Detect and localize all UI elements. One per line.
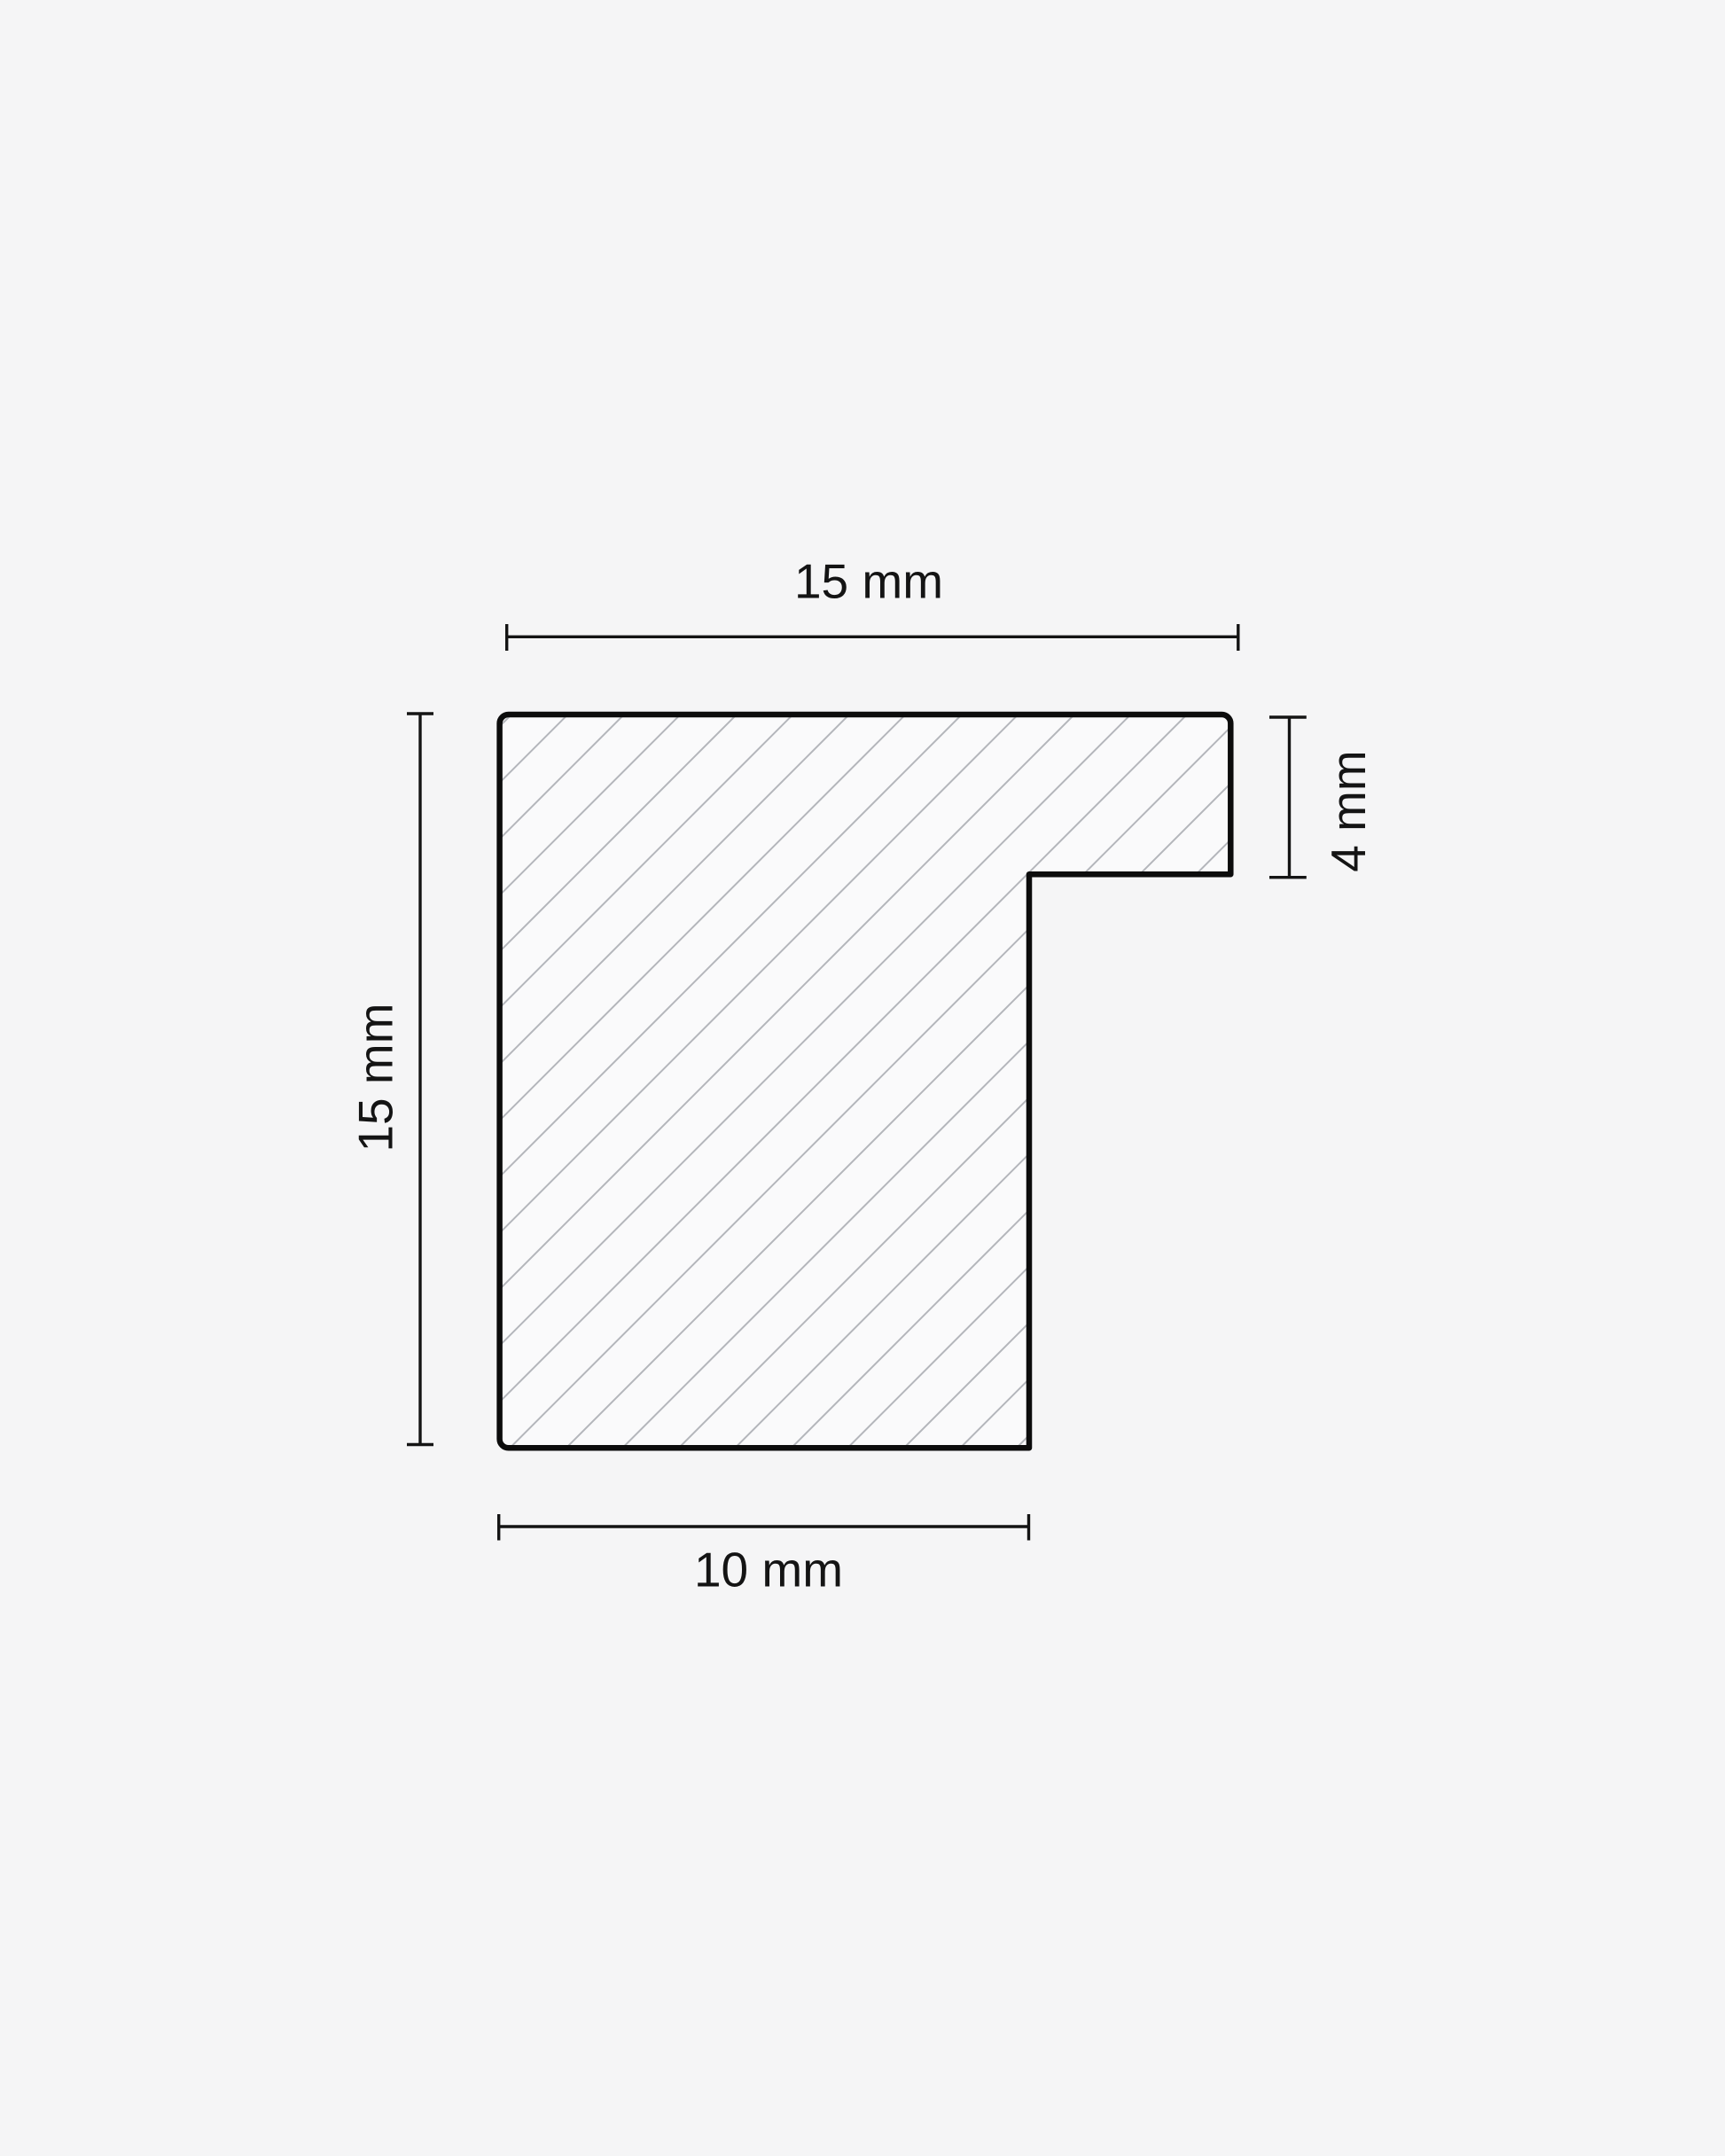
svg-text:15 mm: 15 mm (794, 554, 943, 609)
svg-text:15 mm: 15 mm (348, 1003, 403, 1152)
svg-text:10 mm: 10 mm (694, 1543, 843, 1597)
svg-text:4 mm: 4 mm (1321, 750, 1376, 872)
